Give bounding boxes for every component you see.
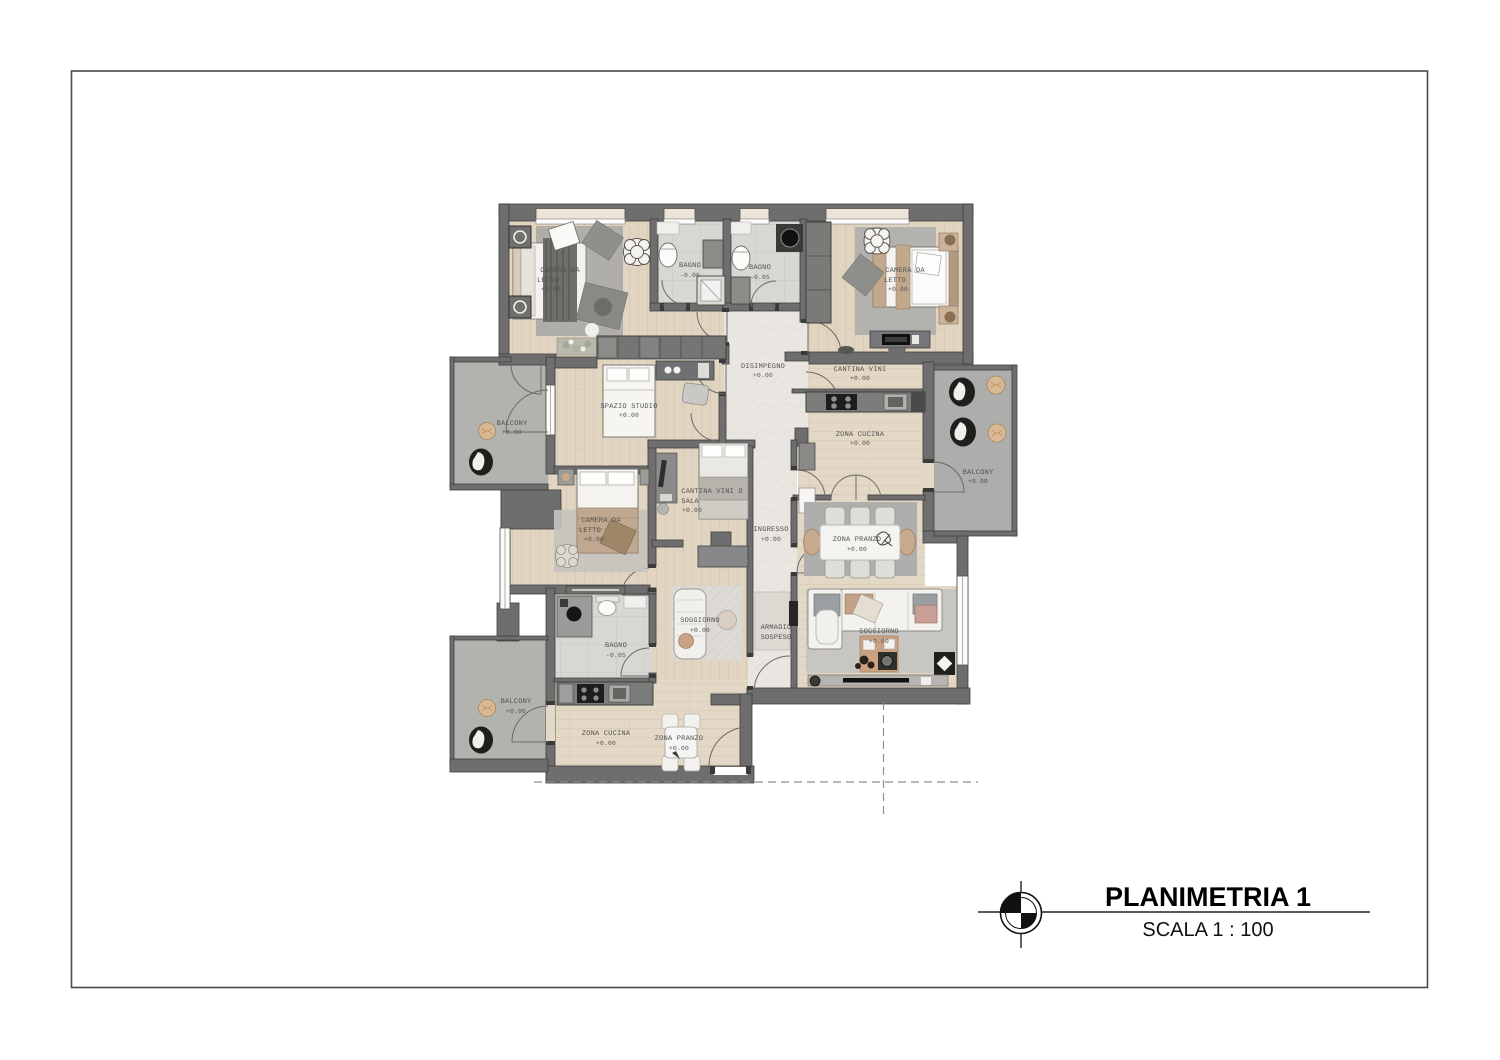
svg-text:BALCONY: BALCONY: [963, 469, 994, 477]
svg-text:+0.00: +0.00: [682, 507, 702, 514]
svg-text:INGRESSO: INGRESSO: [753, 526, 788, 534]
svg-text:LETTO: LETTO: [884, 277, 906, 285]
svg-text:+0.00: +0.00: [596, 740, 616, 747]
svg-text:+0.00: +0.00: [690, 627, 710, 634]
svg-text:BALCONY: BALCONY: [501, 698, 532, 706]
svg-text:SOGGIORNO: SOGGIORNO: [859, 628, 899, 636]
svg-text:CAMERA DA: CAMERA DA: [540, 267, 580, 275]
svg-text:-0.05: -0.05: [680, 272, 700, 279]
svg-text:CANTINA VINI: CANTINA VINI: [834, 366, 887, 374]
svg-text:ZONA CUCINA: ZONA CUCINA: [836, 431, 885, 439]
svg-text:+0.00: +0.00: [669, 745, 689, 752]
svg-text:+0.00: +0.00: [619, 412, 639, 419]
svg-text:SALA: SALA: [681, 498, 699, 506]
svg-text:ZONA PRANZO: ZONA PRANZO: [655, 735, 703, 743]
svg-text:SOGGIORNO: SOGGIORNO: [680, 617, 720, 625]
svg-text:ZONA PRANZO: ZONA PRANZO: [833, 536, 881, 544]
svg-text:SPAZIO STUDIO: SPAZIO STUDIO: [600, 403, 657, 411]
svg-text:+0.00: +0.00: [850, 440, 870, 447]
svg-text:ZONA CUCINA: ZONA CUCINA: [582, 730, 631, 738]
svg-text:CANTINA VINI O: CANTINA VINI O: [681, 488, 743, 496]
svg-text:+0.00: +0.00: [761, 536, 781, 543]
svg-text:+0.00: +0.00: [584, 536, 604, 543]
svg-text:+0.00: +0.00: [850, 375, 870, 382]
svg-text:+0.00: +0.00: [968, 478, 988, 485]
svg-text:DISIMPEGNO: DISIMPEGNO: [741, 363, 785, 371]
svg-text:-0.05: -0.05: [606, 652, 626, 659]
svg-text:SOSPESO: SOSPESO: [761, 634, 792, 642]
svg-text:BAGNO: BAGNO: [679, 262, 701, 270]
svg-text:+0.00: +0.00: [506, 708, 526, 715]
svg-text:BALCONY: BALCONY: [497, 420, 528, 428]
svg-text:+0.00: +0.00: [888, 286, 908, 293]
svg-text:LETTO: LETTO: [579, 527, 601, 535]
svg-text:+0.00: +0.00: [753, 372, 773, 379]
svg-text:+0.00: +0.00: [847, 546, 867, 553]
svg-text:-0.05: -0.05: [750, 274, 770, 281]
svg-text:CAMERA DA: CAMERA DA: [581, 517, 621, 525]
svg-text:SCALA 1 : 100: SCALA 1 : 100: [1142, 919, 1273, 941]
svg-text:ARMADIO: ARMADIO: [761, 624, 792, 632]
svg-text:+0.00: +0.00: [869, 638, 889, 645]
svg-text:PLANIMETRIA 1: PLANIMETRIA 1: [1105, 882, 1311, 912]
svg-text:+0.00: +0.00: [502, 429, 522, 436]
svg-text:BAGNO: BAGNO: [749, 264, 771, 272]
svg-text:CAMERA DA: CAMERA DA: [885, 267, 925, 275]
svg-text:LETTO: LETTO: [537, 277, 559, 285]
svg-text:+0.00: +0.00: [541, 286, 561, 293]
svg-text:BAGNO: BAGNO: [605, 642, 627, 650]
